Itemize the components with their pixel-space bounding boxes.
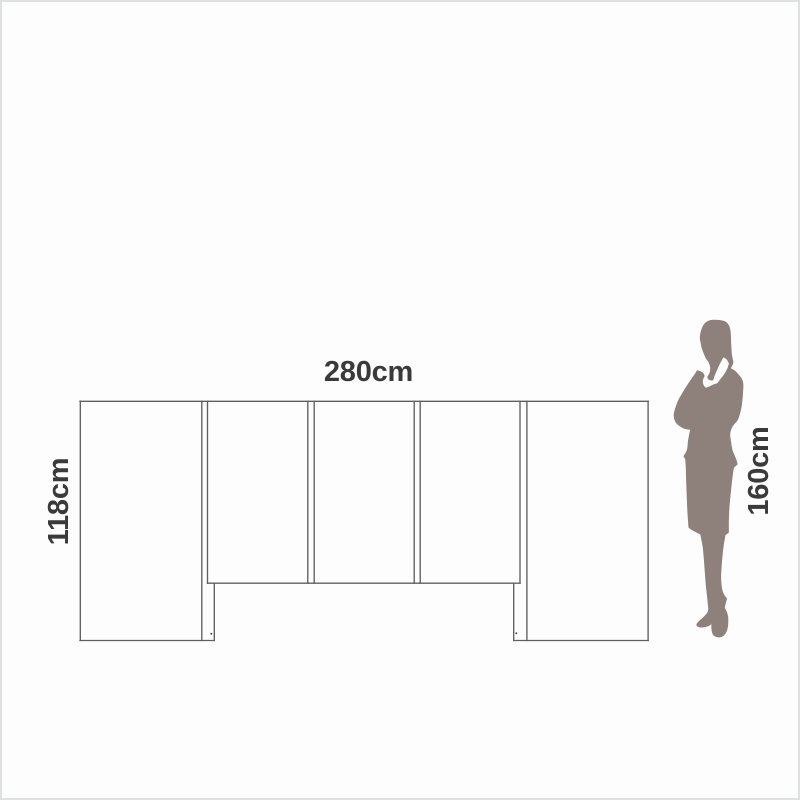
svg-text:118cm: 118cm xyxy=(43,458,75,546)
svg-text:280cm: 280cm xyxy=(324,356,413,388)
svg-text:160cm: 160cm xyxy=(743,426,775,515)
